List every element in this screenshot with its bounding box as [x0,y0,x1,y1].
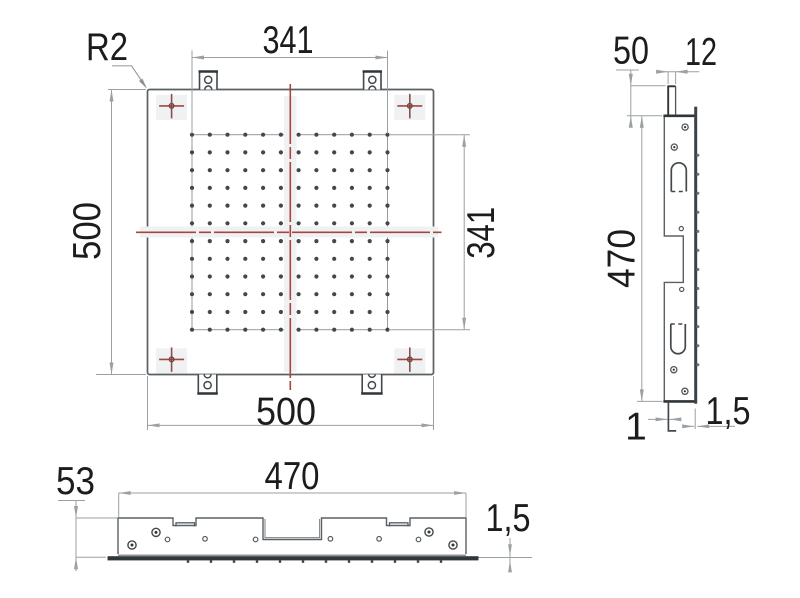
svg-text:500: 500 [256,391,316,434]
svg-text:53: 53 [56,460,95,503]
svg-text:500: 500 [66,202,109,260]
svg-text:470: 470 [601,229,644,288]
svg-text:341: 341 [460,207,503,259]
svg-text:50: 50 [613,30,649,73]
svg-text:1: 1 [625,406,647,449]
svg-text:470: 470 [265,455,320,498]
svg-text:12: 12 [685,31,717,74]
svg-text:R2: R2 [86,26,128,69]
svg-text:1,5: 1,5 [706,390,751,433]
svg-text:1,5: 1,5 [486,497,531,540]
svg-text:341: 341 [263,19,314,62]
